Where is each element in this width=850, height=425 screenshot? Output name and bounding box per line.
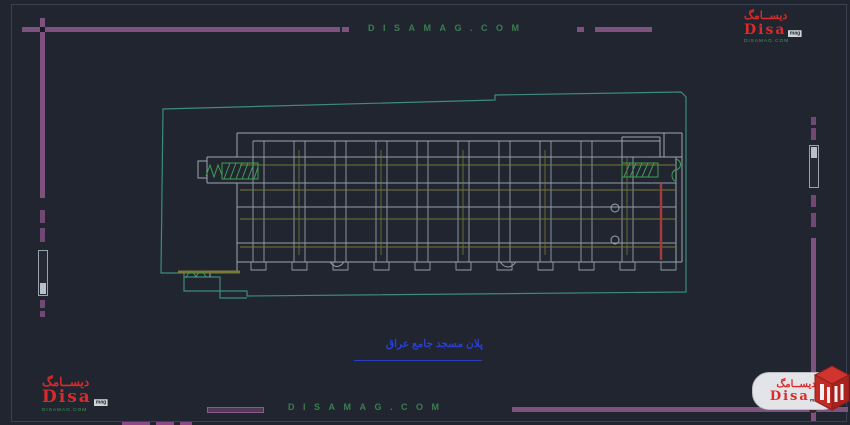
logo-mag-tag: mag <box>788 30 802 37</box>
watermark-bottom: DISAMAG.COM <box>288 402 448 412</box>
site-boundary <box>161 92 686 298</box>
logo-arabic-text: دیســامگ <box>776 380 815 390</box>
watermark-top: DISAMAG.COM <box>368 23 528 33</box>
logo-bottom-left: دیســامگ Disa mag DISAMAG.COM <box>42 376 110 414</box>
logo-top-right: دیســامگ Disa mag DISAMAG.COM <box>744 11 805 45</box>
plan-caption: پلان مسجد جامع عراق <box>386 338 483 350</box>
logo-mag-tag: mag <box>94 399 108 406</box>
logo-latin-text: Disa <box>42 389 92 406</box>
caption-underline <box>354 360 482 361</box>
column-grid <box>237 141 682 270</box>
logo-site-text: DISAMAG.COM <box>744 39 789 44</box>
logo-site-text: DISAMAG.COM <box>42 408 87 413</box>
building-walls <box>198 133 682 277</box>
logo-arabic-text: دیســامگ <box>744 11 787 22</box>
floor-plan-drawing <box>0 0 850 425</box>
cube-logo-icon <box>812 364 850 414</box>
cad-sheet: DISAMAG.COM DISAMAG.COM پلان مسجد جامع ع… <box>0 0 850 425</box>
logo-latin-text: Disa <box>770 390 810 403</box>
logo-latin-text: Disa <box>744 23 786 37</box>
